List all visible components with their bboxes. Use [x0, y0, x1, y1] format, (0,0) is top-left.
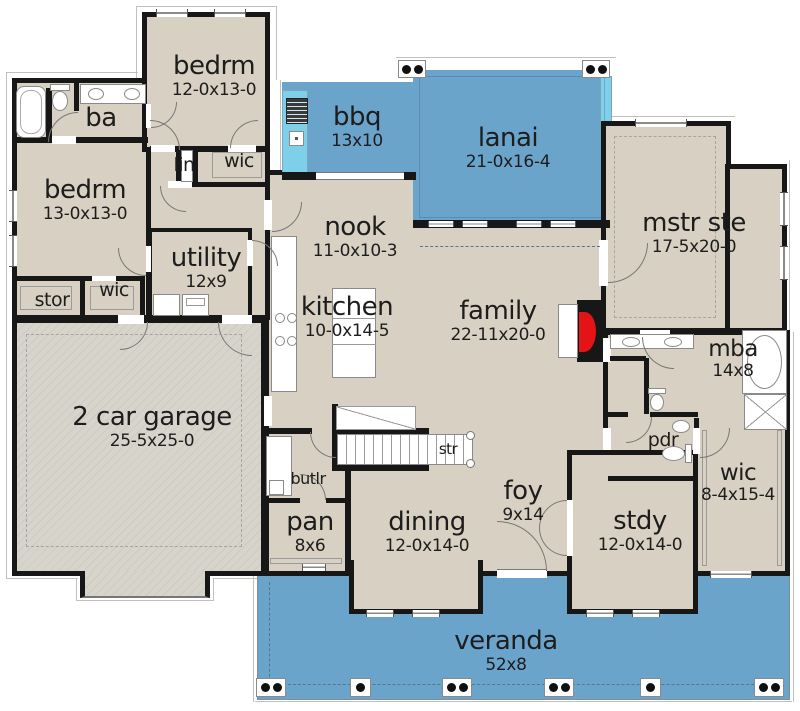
door-opening: [567, 500, 573, 556]
window: [710, 571, 752, 578]
door-opening: [603, 428, 611, 450]
window: [550, 221, 576, 227]
window: [635, 119, 687, 127]
window: [156, 9, 188, 17]
roof-line: [213, 578, 214, 601]
wall-segment: [644, 358, 649, 414]
roof-line: [255, 701, 792, 702]
room-label-nook: nook11-0x10-3: [313, 213, 398, 260]
window: [780, 246, 788, 280]
cooktop-icon: [275, 336, 285, 346]
cooktop-icon: [287, 313, 297, 323]
room-label-mba: mba14x8: [708, 337, 758, 381]
room-label-lin: lin: [173, 155, 194, 176]
window: [462, 221, 488, 227]
room-label-butlr: butlr: [290, 470, 325, 488]
closet-shelf: [777, 430, 782, 566]
room-label-ba: ba: [85, 104, 116, 133]
window: [586, 610, 614, 617]
cooktop-icon: [275, 313, 285, 323]
washer-icon: [153, 294, 180, 316]
window: [9, 235, 17, 267]
door-opening: [599, 240, 608, 286]
column-marker: [442, 678, 472, 697]
room-label-bbq: bbq13x10: [331, 103, 383, 150]
room-fill-dining-bump: [349, 560, 483, 614]
column-marker: [582, 60, 610, 78]
window: [428, 221, 454, 227]
column-marker: [544, 678, 574, 697]
toilet-icon: [52, 91, 68, 111]
wall-segment: [608, 412, 628, 417]
wall-segment: [140, 278, 145, 318]
cooktop-icon: [287, 336, 297, 346]
toilet-icon: [650, 394, 664, 411]
roof-line: [6, 72, 138, 73]
roof-line: [789, 160, 790, 336]
ceiling-dashed-line: [420, 246, 600, 248]
bathtub-inner: [20, 90, 42, 134]
window: [366, 610, 394, 617]
roof-line: [136, 6, 277, 7]
room-label-family: family22-11x20-0: [450, 297, 545, 344]
room-label-kitchen: kitchen10-0x14-5: [301, 293, 393, 340]
room-label-pdr: pdr: [648, 430, 678, 451]
wall-segment: [76, 137, 148, 143]
room-label-bedrm-left: bedrm13-0x13-0: [43, 176, 128, 223]
shower-icon: [744, 394, 787, 430]
wall-segment: [345, 470, 351, 573]
toilet-tank: [685, 444, 692, 463]
fireplace-hearth: [558, 304, 578, 358]
column-marker: [398, 60, 426, 78]
roof-line: [253, 562, 254, 702]
room-label-wic-left: wic: [99, 280, 129, 301]
room-label-stor: stor: [35, 290, 70, 311]
sink-icon: [124, 88, 140, 100]
window: [780, 192, 788, 226]
sink-icon: [88, 88, 104, 100]
room-label-veranda: veranda52x8: [454, 627, 557, 674]
door-opening: [146, 246, 151, 272]
door-opening: [264, 396, 272, 426]
window: [412, 610, 440, 617]
appliance-panel: [186, 298, 205, 306]
room-label-lanai: lanai21-0x16-4: [466, 124, 551, 171]
roof-line: [396, 57, 616, 58]
roof-line: [76, 600, 214, 601]
wall-segment: [80, 278, 85, 318]
room-label-mstr-ste: mstr ste17-5x20-0: [642, 209, 746, 256]
roof-line: [598, 116, 735, 117]
column-marker: [640, 678, 661, 697]
wall-segment: [610, 356, 646, 361]
stair-landing: [336, 406, 416, 430]
room-label-foy: foy9x14: [502, 477, 543, 524]
veranda-dashed-line: [268, 684, 774, 686]
roof-line: [6, 578, 78, 579]
roof-line: [276, 6, 277, 80]
wall-segment: [74, 83, 79, 111]
wall-segment: [264, 498, 300, 503]
room-label-pan: pan8x6: [286, 508, 333, 555]
garage-door-bay: [80, 571, 210, 598]
roof-line: [6, 72, 7, 579]
roof-line: [280, 80, 281, 172]
column-marker: [754, 678, 784, 697]
window: [214, 9, 246, 17]
door-opening: [316, 172, 404, 180]
island-line: [332, 344, 376, 345]
room-label-stdy: stdy12-0x14-0: [598, 507, 683, 554]
stair-rail-post: [466, 431, 475, 440]
window: [302, 564, 326, 571]
room-label-wic-top: wic: [224, 151, 254, 172]
wall-segment: [608, 476, 696, 481]
veranda-dashed-line: [269, 582, 271, 682]
room-label-dining: dining12-0x14-0: [385, 508, 470, 555]
wall-segment: [265, 150, 270, 184]
room-label-wic-right: wic8-4x15-4: [701, 461, 775, 505]
roof-line: [136, 6, 137, 80]
door-opening: [264, 200, 272, 230]
door-opening: [693, 428, 700, 454]
wall-segment: [650, 412, 698, 417]
toilet-icon: [50, 84, 70, 91]
roof-line: [76, 578, 77, 601]
column-marker: [350, 678, 371, 697]
stair-rail-post: [466, 459, 475, 468]
room-label-bedrm-top: bedrm12-0x13-0: [172, 52, 257, 99]
room-label-utility: utility12x9: [171, 244, 241, 291]
room-label-garage: 2 car garage25-5x25-0: [72, 403, 232, 450]
sink-icon: [622, 337, 640, 347]
wall-segment: [264, 428, 312, 434]
floor-plan: bedrm12-0x13-0 ba bedrm13-0x13-0 lin wic…: [0, 0, 800, 711]
room-label-str: str: [439, 441, 457, 458]
sink-icon: [269, 480, 284, 495]
window: [632, 610, 660, 617]
window: [9, 190, 17, 222]
roof-line: [793, 332, 794, 702]
bbq-sink-dot: [295, 137, 298, 140]
window: [516, 221, 542, 227]
grill-icon: [286, 98, 308, 124]
column-marker: [256, 678, 286, 697]
